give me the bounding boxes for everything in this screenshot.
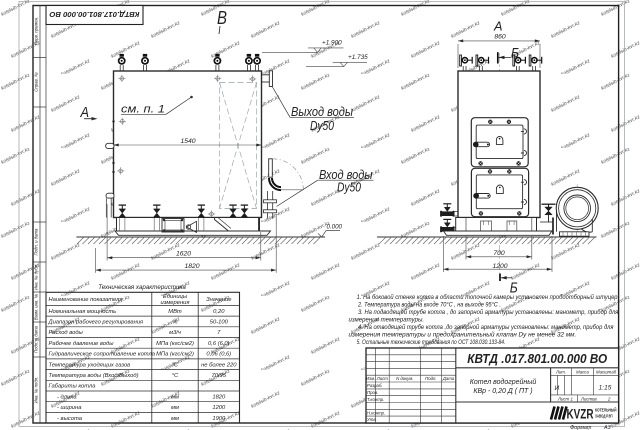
svg-text:КОТЕЛЬНЫЙ: КОТЕЛЬНЫЙ [595, 406, 617, 413]
svg-text:700: 700 [493, 250, 505, 257]
svg-text:3. На подводящей трубе котла: 3. На подводящей трубе котла , до запорн… [358, 309, 619, 316]
svg-text:Котел водогрейный: Котел водогрейный [470, 378, 537, 386]
svg-text:измерения температуры и предох: измерения температуры и предохранительны… [349, 332, 577, 339]
svg-text:Инв. № подл.: Инв. № подл. [34, 377, 39, 404]
svg-text:Формат: Формат [570, 425, 592, 430]
svg-text:0,6 (6,0): 0,6 (6,0) [208, 341, 230, 347]
svg-text:+1.735: +1.735 [348, 54, 368, 61]
svg-text:N докум.: N докум. [396, 376, 413, 381]
svg-text:Листов: Листов [580, 397, 597, 402]
svg-text:Дата: Дата [442, 376, 455, 381]
svg-text:мм: мм [171, 405, 179, 411]
svg-text:Выход воды: Выход воды [291, 104, 353, 119]
svg-text:1. На боковой стенке котла в: 1. На боковой стенке котла в области топ… [357, 294, 619, 301]
svg-text:1200: 1200 [212, 405, 226, 411]
svg-text:Диапазон рабочего регулировани: Диапазон рабочего регулирования [48, 320, 144, 326]
svg-text:50-100: 50-100 [210, 320, 229, 326]
svg-text:И: И [555, 385, 560, 392]
svg-text:Лист: Лист [376, 376, 388, 381]
svg-text:А3: А3 [603, 425, 611, 430]
svg-text:4. На отводящей трубе котла ,: 4. На отводящей трубе котла ,до запорной… [358, 324, 614, 331]
svg-text:Б: Б [510, 279, 518, 296]
svg-text:МПа (кгс/см2): МПа (кгс/см2) [156, 352, 194, 358]
svg-text:Перв. примен.: Перв. примен. [34, 17, 39, 46]
svg-text:Масса: Масса [576, 370, 589, 375]
svg-text:860: 860 [494, 33, 506, 40]
svg-text:Масштаб: Масштаб [596, 370, 617, 375]
svg-text:Гидравлическое сопротивление к: Гидравлическое сопротивление котла [49, 352, 156, 358]
svg-text:Пров.: Пров. [367, 390, 378, 395]
svg-text:2. Температура воды на входе: 2. Температура воды на входе 70°С , на в… [357, 303, 501, 309]
svg-text:КВр - 0,20 Д ( ПТ ): КВр - 0,20 Д ( ПТ ) [473, 388, 532, 395]
svg-text:- высота: - высота [57, 416, 83, 422]
svg-text:Значение: Значение [206, 297, 232, 303]
svg-text:мм: мм [171, 416, 179, 422]
svg-text:мм: мм [171, 394, 179, 400]
svg-text:м3/ч: м3/ч [169, 330, 181, 336]
svg-text:ЗАВОД РЭП: ЗАВОД РЭП [595, 414, 613, 419]
svg-text:Лит.: Лит. [555, 370, 566, 375]
svg-text:Изм.: Изм. [366, 376, 375, 381]
svg-text:Утв.: Утв. [367, 417, 377, 422]
svg-text:0,20: 0,20 [213, 309, 225, 315]
svg-text:Подп. и дата: Подп. и дата [34, 228, 39, 256]
svg-text:Подп.: Подп. [425, 376, 436, 381]
svg-text:Подп. и дата: Подп. и дата [34, 325, 39, 353]
svg-text:KVZR: KVZR [567, 407, 594, 422]
svg-text:Т.контр.: Т.контр. [367, 397, 384, 402]
svg-text:1540: 1540 [180, 138, 195, 145]
svg-text:Разраб.: Разраб. [367, 383, 383, 388]
svg-text:0.000: 0.000 [327, 224, 343, 231]
svg-text:Габариты котла: Габариты котла [49, 384, 97, 390]
svg-text:1:15: 1:15 [599, 385, 612, 392]
svg-text:Н.контр.: Н.контр. [367, 410, 385, 415]
svg-text:измерения температуры.: измерения температуры. [349, 318, 425, 324]
svg-text:Лист: Лист [557, 397, 569, 402]
svg-text:- длина: - длина [57, 394, 77, 400]
svg-text:КВТД.017.801.00.000 ВО: КВТД.017.801.00.000 ВО [49, 10, 139, 19]
svg-text:°С: °С [172, 362, 179, 368]
svg-text:- ширина: - ширина [57, 405, 82, 411]
svg-text:1820: 1820 [212, 394, 226, 400]
svg-text:см. п. 1: см. п. 1 [121, 103, 165, 115]
svg-text:Справ. №: Справ. № [34, 72, 39, 92]
svg-text:1200: 1200 [492, 263, 507, 270]
svg-text:измерения: измерения [160, 300, 189, 306]
svg-text:В: В [217, 8, 227, 28]
svg-text:Техническая характеристика: Техническая характеристика [98, 284, 186, 291]
svg-text:1620: 1620 [176, 251, 191, 258]
svg-text:Взам. инв. №: Взам. инв. № [34, 293, 39, 320]
svg-text:Температура уходящих газов: Температура уходящих газов [49, 362, 131, 368]
svg-text:А: А [493, 19, 503, 33]
svg-text:Наименование показателя: Наименование показателя [49, 297, 123, 303]
svg-text:Рабочее давление воды: Рабочее давление воды [49, 341, 115, 347]
svg-text:Dy50: Dy50 [337, 179, 362, 194]
svg-text:1900: 1900 [212, 416, 226, 422]
svg-text:Температура воды (Вход/Выход): Температура воды (Вход/Выход) [49, 373, 139, 379]
svg-text:КВТД .017.801.00.000 ВО: КВТД .017.801.00.000 ВО [467, 352, 607, 366]
svg-text:°С: °С [172, 373, 179, 379]
svg-text:70/95: 70/95 [212, 373, 227, 379]
svg-text:Расход воды: Расход воды [49, 330, 84, 336]
svg-text:МПа (кгс/см2): МПа (кгс/см2) [156, 341, 194, 347]
svg-text:МВт: МВт [168, 309, 182, 315]
svg-text:1820: 1820 [184, 263, 199, 270]
svg-text:%: % [172, 320, 177, 326]
svg-text:5. Остальные технические треб: 5. Остальные технические требования по О… [357, 340, 506, 346]
svg-text:Dy50: Dy50 [310, 118, 335, 133]
svg-text:не более 220: не более 220 [201, 362, 237, 368]
svg-text:Номинальная мощность: Номинальная мощность [49, 309, 117, 315]
svg-text:Единицы: Единицы [163, 294, 188, 300]
svg-text:Инв. № дубл.: Инв. № дубл. [34, 264, 39, 290]
svg-text:+1.900: +1.900 [322, 39, 342, 46]
svg-text:0,06 (0,6): 0,06 (0,6) [206, 352, 231, 358]
